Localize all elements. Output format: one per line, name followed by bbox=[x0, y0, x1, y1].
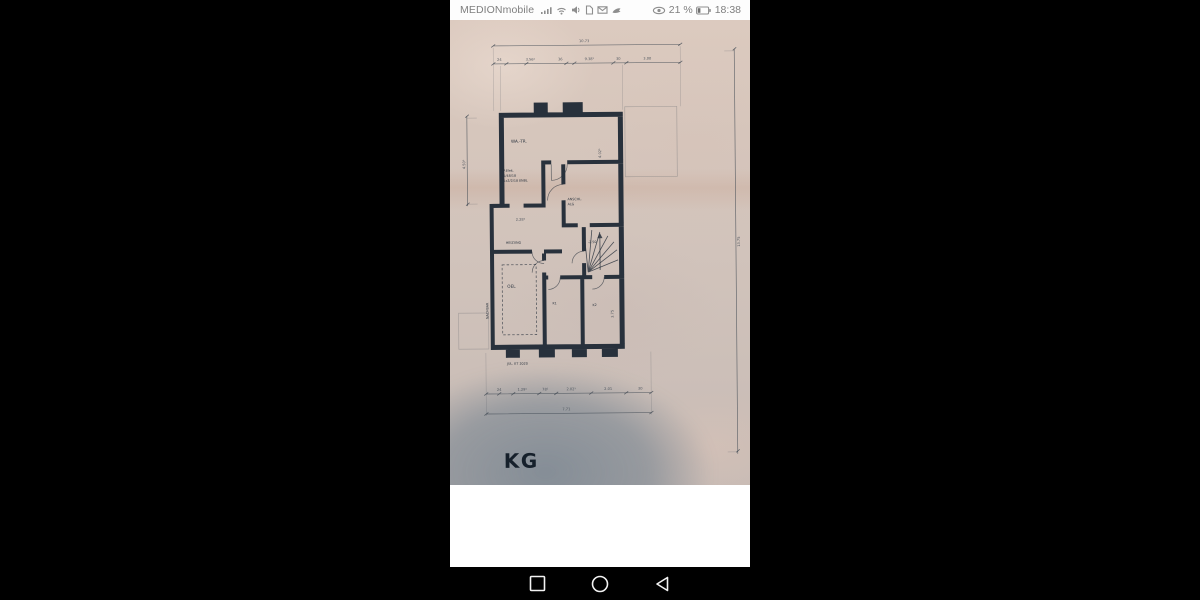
note-line-3: 1x2/2/18 ENBL bbox=[503, 179, 528, 183]
dim-cellar2-height: 3.75 bbox=[611, 310, 615, 318]
dim-bottom-seg-4: 2.01 bbox=[604, 387, 612, 391]
floorplan-photo[interactable]: WA.-TR. P.Elek. 1/48/18 1x2/2/18 ENBL AN… bbox=[450, 20, 750, 485]
walls bbox=[489, 102, 625, 358]
status-bar-right: 21 % 18:38 bbox=[652, 4, 741, 16]
room-label-heating: HEIZUNG bbox=[506, 241, 522, 245]
visibility-icon bbox=[652, 6, 666, 15]
home-button[interactable] bbox=[591, 575, 609, 593]
volume-icon bbox=[571, 5, 582, 15]
square-outline-icon bbox=[529, 575, 546, 592]
room-label-oil: OEL bbox=[507, 284, 516, 289]
room-label-cellar2: K2 bbox=[592, 303, 596, 307]
adjacent-structure-outline-right bbox=[625, 106, 678, 176]
status-bar: MEDIONmobile bbox=[450, 0, 750, 20]
dim-room-height: 4.02⁵ bbox=[598, 148, 602, 158]
wifi-icon bbox=[556, 5, 568, 15]
dim-bottom-seg-1: 1.29⁵ bbox=[517, 388, 527, 392]
dim-left-height: 4.50⁵ bbox=[462, 159, 466, 169]
roaming-icon bbox=[611, 5, 622, 15]
clock-label: 18:38 bbox=[715, 4, 741, 16]
dim-bottom-seg-3: 2.02⁵ bbox=[566, 387, 576, 391]
screen: MEDIONmobile bbox=[0, 0, 1200, 600]
circle-outline-icon bbox=[591, 575, 609, 593]
date-note: JUL. ET 2020 bbox=[506, 362, 528, 366]
android-nav-bar bbox=[450, 567, 750, 600]
level-annotation: -2.50 bbox=[588, 240, 597, 244]
room-label-connection-2: ALG bbox=[568, 202, 575, 206]
floorplan-drawing: WA.-TR. P.Elek. 1/48/18 1x2/2/18 ENBL AN… bbox=[450, 20, 750, 485]
dim-bottom-seg-5: 30 bbox=[638, 387, 643, 391]
status-bar-left: MEDIONmobile bbox=[460, 4, 622, 16]
room-label-cellar1: K1 bbox=[552, 301, 556, 305]
note-line-2: 1/48/18 bbox=[503, 174, 516, 178]
dim-top-seg-1: 3.56⁵ bbox=[526, 58, 536, 62]
back-button[interactable] bbox=[654, 575, 671, 593]
battery-percent-label: 21 % bbox=[669, 4, 693, 16]
content-gap bbox=[450, 485, 750, 567]
dim-top-total: 10.73 bbox=[579, 39, 589, 43]
dim-bottom-seg-2: 78⁵ bbox=[542, 387, 549, 391]
triangle-left-outline-icon bbox=[654, 575, 671, 593]
dim-right-total: 13.75 bbox=[737, 236, 741, 246]
recents-button[interactable] bbox=[529, 575, 546, 592]
dim-top-seg-3: 9.38⁵ bbox=[585, 57, 595, 61]
signal-strength-icon bbox=[540, 5, 553, 15]
dim-bottom-seg-0: 24 bbox=[497, 388, 502, 392]
oil-tank-outline bbox=[502, 265, 537, 335]
mail-icon bbox=[597, 5, 608, 15]
dim-top-seg-5: 3.00 bbox=[643, 57, 652, 61]
neighbor-label: NACHBAR bbox=[485, 302, 489, 319]
floor-stamp-kg: KG bbox=[504, 449, 539, 473]
dim-top-seg-4: 30 bbox=[616, 57, 621, 61]
stairs-arrow-head bbox=[597, 233, 602, 238]
room-label-laundry: WA.-TR. bbox=[511, 139, 527, 144]
adjacent-structure-outline-left bbox=[459, 313, 489, 349]
carrier-label: MEDIONmobile bbox=[460, 4, 534, 16]
note-line-1: P.Elek. bbox=[503, 169, 514, 173]
phone-screen: MEDIONmobile bbox=[450, 0, 750, 600]
sim-card-icon bbox=[585, 5, 594, 15]
room-label-connection-1: ANSCHL. bbox=[568, 197, 583, 201]
dim-mid-width: 2.28⁵ bbox=[516, 218, 526, 222]
battery-icon bbox=[696, 6, 712, 15]
dim-top-seg-2: 36 bbox=[558, 57, 563, 61]
dim-top-seg-0: 24 bbox=[497, 58, 502, 62]
dim-bottom-total: 7.71 bbox=[562, 407, 570, 411]
